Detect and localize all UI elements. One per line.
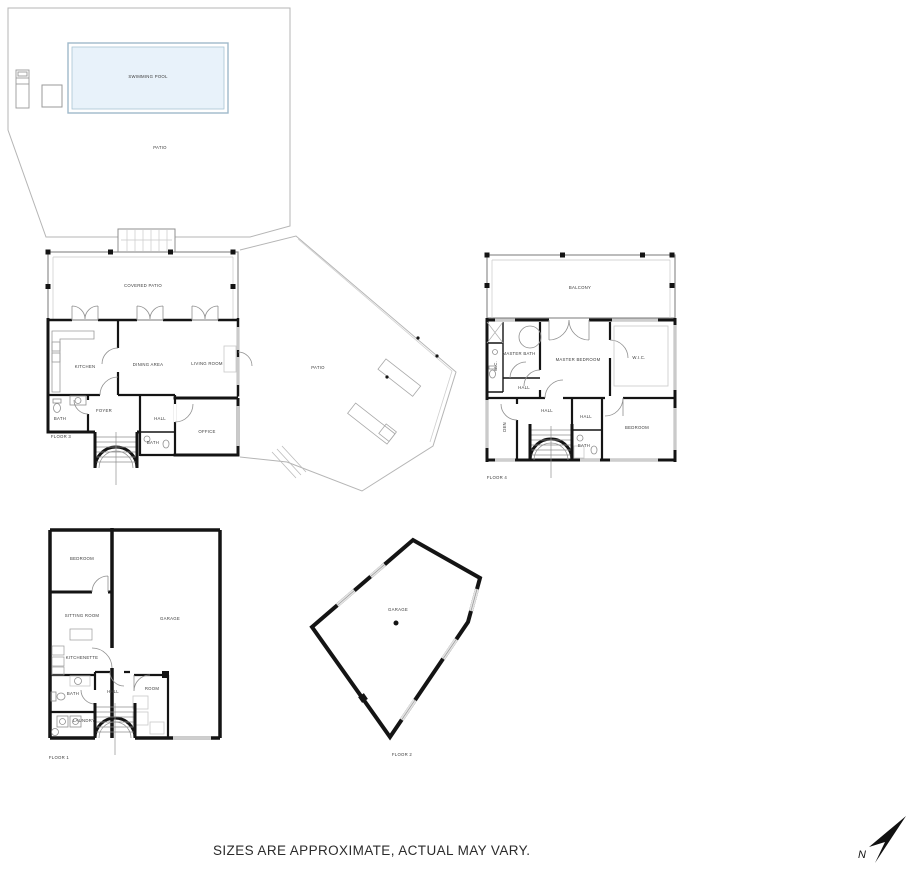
patio-posts xyxy=(385,336,438,378)
swimming-pool-label: SWIMMING POOL xyxy=(128,75,167,79)
kitchen-counter xyxy=(52,331,94,392)
wic-label: W.I.C. xyxy=(632,356,645,360)
north-letter: N xyxy=(858,850,866,861)
pool-equipment xyxy=(16,70,29,108)
bath-label: BATH xyxy=(578,444,590,448)
wc-label: W.C. xyxy=(494,361,498,371)
bath-label: BATH xyxy=(147,441,159,445)
floor3-tag: FLOOR 3 xyxy=(51,435,71,439)
master-bedroom-label: MASTER BEDROOM xyxy=(556,358,601,362)
hall-label: HALL xyxy=(541,409,553,413)
planter xyxy=(348,359,421,444)
bedroom-label: BEDROOM xyxy=(625,426,649,430)
sitting-room-label: SITTING ROOM xyxy=(65,614,100,618)
kitchenette-counter xyxy=(52,629,92,675)
hall-label: HALL xyxy=(107,690,119,694)
floorplan-page: SWIMMING POOL PATIO COVERED PATIO KITCHE… xyxy=(0,0,918,872)
hall-label: HALL xyxy=(580,415,592,419)
hall-label: HALL xyxy=(154,417,166,421)
wall-post xyxy=(162,671,169,678)
disclaimer-text: SIZES ARE APPROXIMATE, ACTUAL MAY VARY. xyxy=(213,843,530,859)
floor2-plan xyxy=(312,540,480,737)
garage-label: GARAGE xyxy=(160,617,180,621)
bath-label: BATH xyxy=(54,417,66,421)
patio-label: PATIO xyxy=(153,146,167,150)
garage-label: GARAGE xyxy=(388,608,408,612)
foyer-label: FOYER xyxy=(96,409,112,413)
floor1-stairs xyxy=(95,703,135,755)
floor2-tag: FLOOR 2 xyxy=(392,753,412,757)
floor4-windows xyxy=(487,320,675,460)
patio-railing xyxy=(298,239,452,442)
support-column xyxy=(394,621,399,626)
room-label: ROOM xyxy=(145,687,159,691)
floor4-stairs xyxy=(530,426,572,478)
north-arrow-icon xyxy=(869,816,906,863)
living-room-label: LIVING ROOM xyxy=(191,362,222,366)
hall-label: HALL xyxy=(518,386,530,390)
floor4-fixtures xyxy=(487,322,668,458)
den-label: DEN xyxy=(503,422,507,432)
floor3-stairs xyxy=(95,432,137,485)
floorplan-canvas xyxy=(0,0,918,872)
office-label: OFFICE xyxy=(198,430,215,434)
kitchen-label: KITCHEN xyxy=(75,365,96,369)
floor3-plan xyxy=(46,229,253,485)
kitchenette-label: KITCHENETTE xyxy=(66,656,99,660)
balcony-label: BALCONY xyxy=(569,286,591,290)
site-plan xyxy=(8,8,290,237)
steps xyxy=(118,229,175,252)
floor4-tag: FLOOR 4 xyxy=(487,476,507,480)
master-bath-label: MASTER BATH xyxy=(503,352,536,356)
dining-area-label: DINING AREA xyxy=(133,363,163,367)
patio-label: PATIO xyxy=(311,366,325,370)
covered-patio-label: COVERED PATIO xyxy=(124,284,162,288)
laundry-label: LAUNDRY xyxy=(73,719,95,723)
patio-steps xyxy=(272,446,306,478)
bedroom-label: BEDROOM xyxy=(70,557,94,561)
spa xyxy=(42,85,62,107)
bath-label: BATH xyxy=(67,692,79,696)
mid-patio xyxy=(240,236,456,491)
floor4-walls xyxy=(487,318,675,462)
floor1-tag: FLOOR 1 xyxy=(49,756,69,760)
